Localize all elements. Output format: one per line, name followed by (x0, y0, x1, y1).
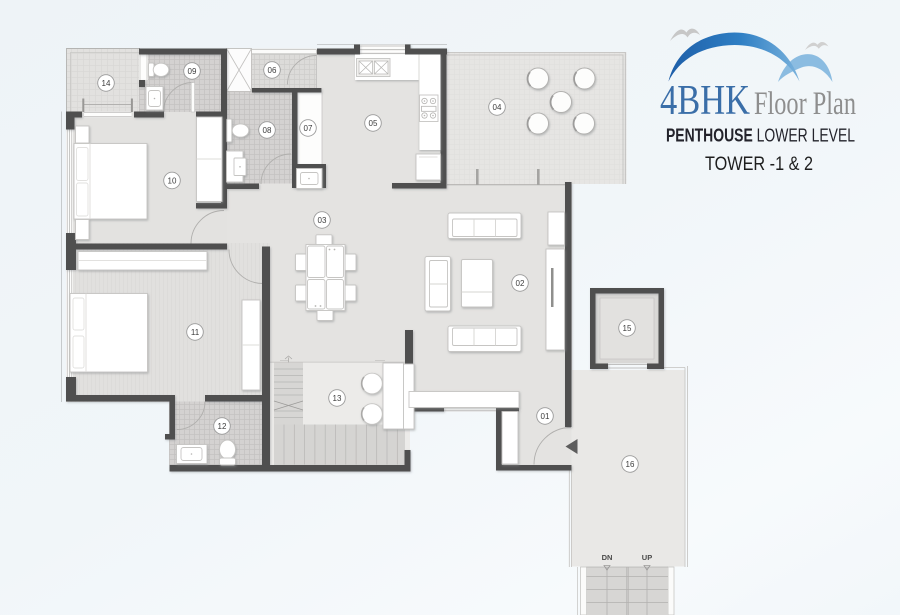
svg-text:10: 10 (168, 177, 177, 186)
svg-text:Floor Plan: Floor Plan (754, 86, 856, 122)
svg-text:DN: DN (602, 553, 613, 562)
svg-text:14: 14 (102, 79, 111, 88)
svg-text:15: 15 (623, 324, 632, 333)
svg-text:4BHK: 4BHK (660, 78, 750, 124)
svg-text:16: 16 (626, 460, 635, 469)
svg-text:06: 06 (268, 66, 277, 75)
svg-text:11: 11 (191, 328, 200, 337)
svg-text:13: 13 (333, 394, 342, 403)
svg-text:12: 12 (218, 422, 227, 431)
svg-text:05: 05 (369, 119, 378, 128)
svg-text:09: 09 (188, 67, 197, 76)
svg-text:02: 02 (516, 279, 525, 288)
svg-text:04: 04 (493, 103, 502, 112)
svg-text:03: 03 (318, 216, 327, 225)
svg-text:08: 08 (263, 126, 272, 135)
svg-text:TOWER -1 & 2: TOWER -1 & 2 (705, 153, 813, 175)
svg-text:07: 07 (304, 124, 313, 133)
svg-text:UP: UP (642, 553, 652, 562)
svg-text:PENTHOUSE LOWER LEVEL: PENTHOUSE LOWER LEVEL (666, 125, 855, 146)
svg-text:01: 01 (541, 412, 550, 421)
